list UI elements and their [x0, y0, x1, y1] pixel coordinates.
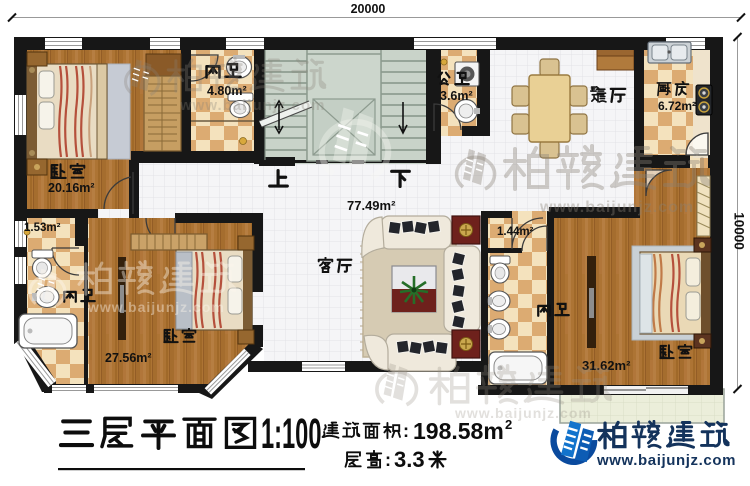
svg-text::: :: [385, 450, 391, 470]
svg-text:1.53m²: 1.53m²: [24, 222, 61, 234]
svg-text:www.baijunjz.com: www.baijunjz.com: [539, 199, 694, 216]
svg-text:3.6m²: 3.6m²: [440, 89, 473, 103]
svg-text:www.baijunjz.com: www.baijunjz.com: [179, 97, 325, 114]
svg-text:www.baijunjz.com: www.baijunjz.com: [596, 452, 736, 469]
svg-text:1:100: 1:100: [261, 411, 321, 458]
svg-text:10000: 10000: [732, 212, 747, 250]
svg-text:77.49m²: 77.49m²: [347, 198, 396, 213]
svg-text:2: 2: [505, 417, 512, 432]
svg-text:20000: 20000: [351, 2, 386, 16]
svg-text:1.44m²: 1.44m²: [497, 226, 534, 238]
svg-text:27.56m²: 27.56m²: [105, 351, 152, 365]
svg-text:3.3: 3.3: [394, 447, 425, 472]
svg-text:198.58m: 198.58m: [413, 418, 504, 444]
svg-text::: :: [403, 421, 409, 441]
svg-text:www.baijunjz.com: www.baijunjz.com: [87, 299, 225, 315]
svg-text:6.72m²: 6.72m²: [658, 99, 696, 113]
svg-text:20.16m²: 20.16m²: [48, 181, 95, 195]
